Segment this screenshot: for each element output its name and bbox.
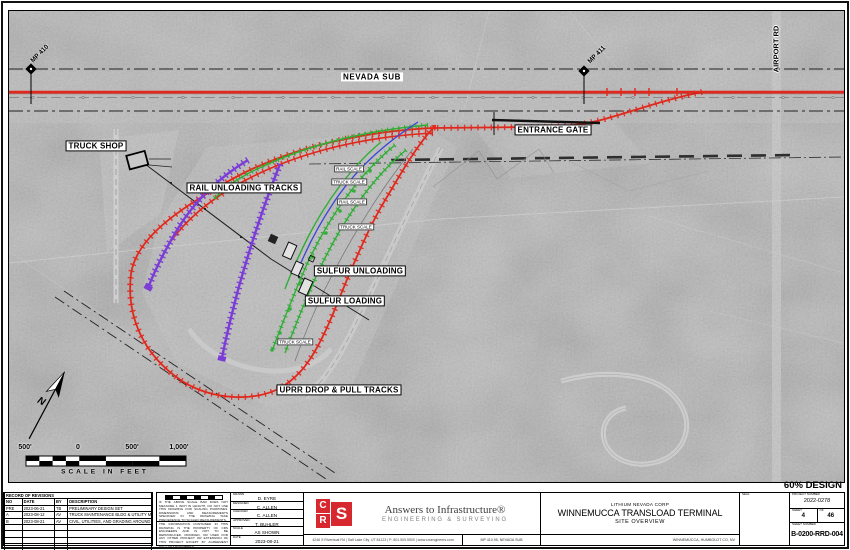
project-title: WINNEMUCCA TRANSLOAD TERMINAL — [558, 508, 723, 518]
of-label: OF — [820, 509, 824, 513]
drawing-sheet: NEVADA SUBAIRPORT RDMP 410MP 411TRUCK SH… — [0, 0, 850, 550]
revisions-table: RECORD OF REVISIONSNODATEBYDESCRIPTIONPR… — [4, 493, 152, 550]
aerial-imagery — [9, 11, 844, 482]
scale-check-note: IF THE ABOVE SCALE BAR DOES NOT MEASURE … — [157, 493, 230, 522]
firm-text: Answers to Infrastructure® ENGINEERING &… — [356, 504, 540, 523]
credit-row: SCALEAS SHOWN — [231, 527, 303, 536]
notes-cell: IF THE ABOVE SCALE BAR DOES NOT MEASURE … — [156, 492, 231, 546]
site-map — [8, 10, 845, 483]
project-location: WINNEMUCCA, HUMBOLDT CO, NV — [541, 534, 739, 545]
sheet-count-row: SHEET 4 OF 46 — [790, 509, 844, 523]
scale-bar — [26, 456, 186, 466]
design-stage-label: 60% DESIGN — [620, 480, 842, 491]
numbers-cell: PROJECT NUMBER 2022-0278 SHEET 4 OF 46 S… — [789, 492, 845, 546]
sheet-value: 4 — [790, 513, 817, 519]
client-name: LITHIUM NEVADA CORP — [611, 502, 669, 507]
sheet-number-label: SHEET NUMBER — [792, 523, 816, 527]
firm-tagline: Answers to Infrastructure® — [356, 504, 534, 516]
revisions-cell: RECORD OF REVISIONSNODATEBYDESCRIPTIONPR… — [3, 492, 153, 546]
of-value: 46 — [818, 513, 845, 519]
revision-row-empty — [5, 544, 152, 550]
sheet-cell: SHEET 4 — [790, 509, 817, 522]
credit-row: DATE2023-08-21 — [231, 536, 303, 545]
firm-address: 4246 S Riverboat Rd | Salt Lake City, UT… — [304, 535, 462, 545]
project-number: 2022-0278 — [790, 498, 844, 504]
project-cell: LITHIUM NEVADA CORP WINNEMUCCA TRANSLOAD… — [540, 492, 740, 546]
firm-division: ENGINEERING & SURVEYING — [356, 517, 534, 523]
crs-logo: C S R — [316, 498, 356, 530]
sheet-number-row: SHEET NUMBER B-0200-RRD-004 — [790, 523, 844, 545]
logo-letter-s: S — [331, 502, 352, 526]
firm-cell: C S R Answers to Infrastructure® ENGINEE… — [303, 492, 541, 546]
revision-row: B2023-08-21AVCIVIL, UTILITIES, AND GRADI… — [5, 518, 152, 524]
sheet-label: SHEET — [792, 509, 802, 513]
property-note-text: THE INFORMATION CONTAINED IN THIS DRAWIN… — [159, 523, 228, 548]
scale-note-text: IF THE ABOVE SCALE BAR DOES NOT MEASURE … — [159, 501, 228, 523]
revision-row: A2023-08-12AVTRUCK MAINTENANCE BLDG & UT… — [5, 512, 152, 518]
firm-bottom: 4246 S Riverboat Rd | Salt Lake City, UT… — [304, 534, 540, 545]
sheet-title: SITE OVERVIEW — [615, 519, 665, 525]
seal-label: SEAL — [742, 493, 750, 497]
logo-letter-c: C — [316, 499, 330, 513]
project-number-row: PROJECT NUMBER 2022-0278 — [790, 493, 844, 509]
seal-cell: SEAL — [739, 492, 790, 546]
aerial-plan-svg — [9, 11, 844, 482]
project-number-label: PROJECT NUMBER — [792, 493, 820, 497]
project-main: LITHIUM NEVADA CORP WINNEMUCCA TRANSLOAD… — [541, 493, 739, 534]
sheet-number: B-0200-RRD-004 — [790, 531, 844, 538]
credits-cell: DRAWND. EYREDESIGNEDC. ALLENCHECKEDC. AL… — [230, 492, 304, 546]
title-block: RECORD OF REVISIONSNODATEBYDESCRIPTIONPR… — [3, 492, 845, 546]
milepost-reference: MP 410.95, NEVADA SUB — [462, 535, 540, 545]
property-note: THE INFORMATION CONTAINED IN THIS DRAWIN… — [157, 522, 230, 545]
of-cell: OF 46 — [817, 509, 845, 522]
logo-letter-r: R — [316, 514, 330, 528]
firm-main: C S R Answers to Infrastructure® ENGINEE… — [304, 493, 540, 534]
